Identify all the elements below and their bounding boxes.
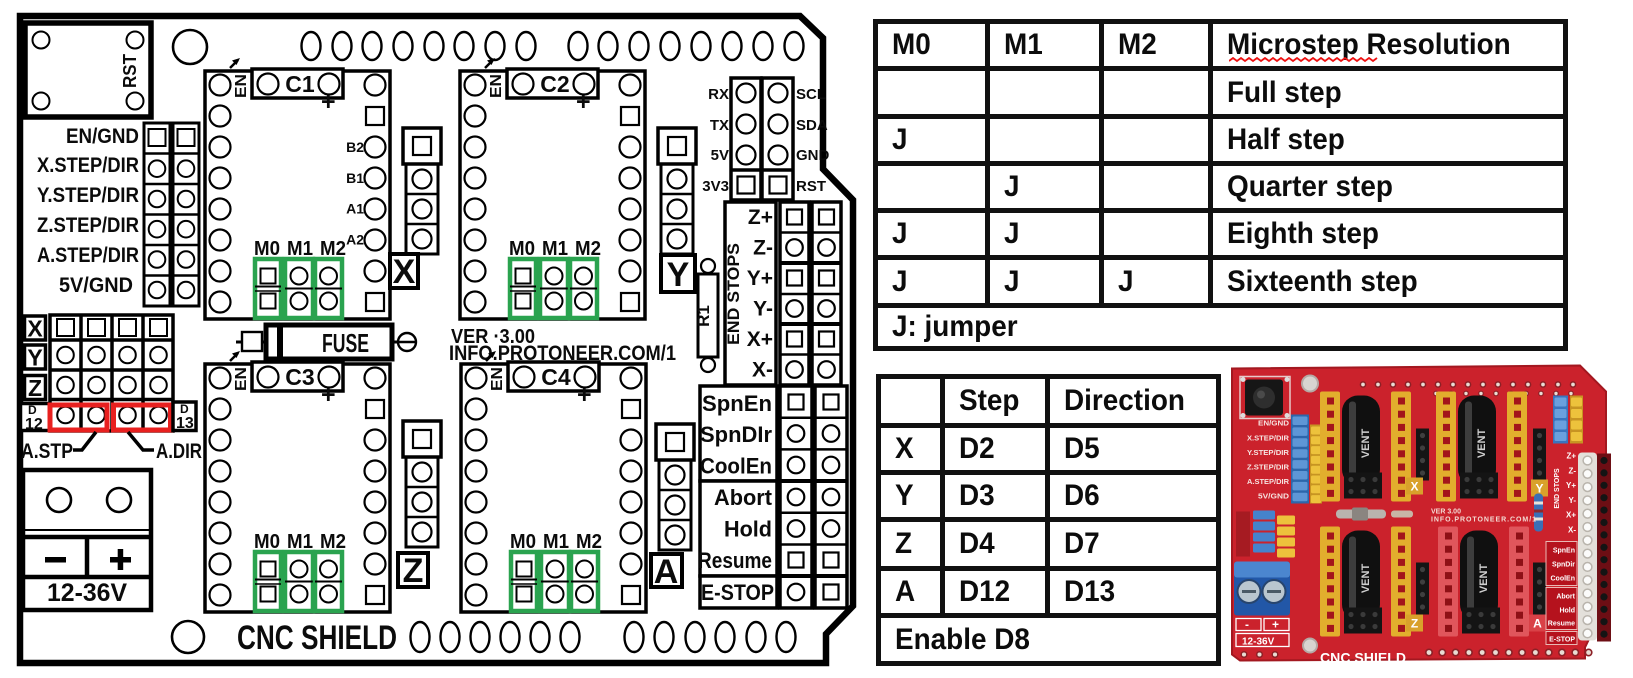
svg-text:Z+: Z+ (748, 206, 773, 229)
svg-text:D: D (28, 403, 37, 417)
svg-text:END STOPS: END STOPS (1554, 468, 1561, 509)
svg-text:5V/GND: 5V/GND (1258, 492, 1290, 501)
svg-text:Y: Y (667, 256, 690, 294)
svg-text:X.STEP/DIR: X.STEP/DIR (37, 154, 139, 177)
svg-text:INFO.PROTONEER.COM/1: INFO.PROTONEER.COM/1 (1431, 517, 1536, 524)
svg-text:SpnEn: SpnEn (702, 391, 772, 416)
svg-text:Abort: Abort (1556, 594, 1575, 601)
svg-text:X: X (27, 316, 43, 342)
svg-text:5V: 5V (711, 147, 729, 164)
svg-text:3V3: 3V3 (702, 178, 729, 195)
svg-text:Y+: Y+ (747, 267, 773, 290)
svg-text:X: X (1410, 480, 1418, 494)
svg-text:GND: GND (796, 147, 830, 164)
svg-text:FUSE: FUSE (322, 328, 369, 358)
svg-text:+: + (1272, 618, 1279, 632)
svg-text:SpnEn: SpnEn (1553, 548, 1575, 555)
svg-text:END STOPS: END STOPS (724, 243, 743, 345)
svg-text:VENT: VENT (1360, 564, 1372, 594)
svg-text:E-STOP: E-STOP (701, 580, 774, 605)
svg-text:A2: A2 (346, 232, 364, 248)
svg-text:D: D (180, 402, 189, 416)
svg-text:EN/GND: EN/GND (66, 125, 139, 148)
svg-text:Abort: Abort (714, 485, 773, 510)
svg-text:CNC SHIELD: CNC SHIELD (1320, 650, 1406, 666)
svg-text:Resume: Resume (1548, 621, 1575, 628)
svg-text:Resume: Resume (698, 548, 772, 573)
svg-text:12-36V: 12-36V (1242, 637, 1275, 648)
svg-text:A.STEP/DIR: A.STEP/DIR (1247, 477, 1290, 486)
svg-text:VER 3.00: VER 3.00 (1431, 509, 1461, 516)
svg-text:Z+: Z+ (1566, 452, 1576, 461)
svg-text:B1: B1 (346, 170, 364, 186)
svg-text:Y.STEP/DIR: Y.STEP/DIR (1247, 448, 1290, 457)
svg-text:R1: R1 (694, 305, 713, 327)
svg-text:12: 12 (25, 416, 43, 433)
svg-text:VENT: VENT (1476, 429, 1488, 459)
svg-text:C4: C4 (541, 364, 571, 390)
svg-text:SpnDir: SpnDir (1552, 562, 1575, 569)
svg-text:Z: Z (1411, 617, 1418, 631)
svg-text:A.STP: A.STP (21, 440, 73, 463)
svg-text:SpnDIr: SpnDIr (700, 422, 772, 447)
svg-text:VENT: VENT (1360, 429, 1372, 459)
svg-text:RX: RX (708, 86, 729, 103)
svg-text:-: - (1245, 618, 1249, 632)
svg-text:Y+: Y+ (1566, 481, 1576, 490)
svg-text:A.STEP/DIR: A.STEP/DIR (37, 244, 139, 267)
svg-text:TX: TX (710, 117, 729, 134)
svg-text:B2: B2 (346, 139, 364, 155)
svg-text:EN/GND: EN/GND (1258, 419, 1290, 428)
svg-text:CoolEn: CoolEn (1551, 576, 1576, 583)
svg-text:Z.STEP/DIR: Z.STEP/DIR (37, 214, 139, 237)
svg-text:Y.STEP/DIR: Y.STEP/DIR (37, 184, 139, 207)
svg-text:CoolEn: CoolEn (700, 454, 772, 479)
svg-text:C2: C2 (540, 71, 569, 97)
svg-text:Y: Y (27, 345, 42, 371)
svg-text:RST: RST (120, 54, 140, 88)
svg-text:Y-: Y- (753, 298, 773, 321)
svg-text:5V/GND: 5V/GND (59, 274, 133, 297)
svg-text:Hold: Hold (724, 517, 772, 542)
svg-text:VENT: VENT (1478, 564, 1490, 594)
svg-text:C3: C3 (285, 364, 314, 390)
svg-text:CNC SHIELD: CNC SHIELD (237, 619, 397, 657)
svg-text:13: 13 (176, 415, 194, 432)
svg-text:Hold: Hold (1559, 608, 1575, 615)
svg-text:E-STOP: E-STOP (1549, 637, 1575, 644)
svg-text:RST: RST (796, 178, 826, 195)
svg-text:A: A (654, 553, 679, 591)
svg-text:A1: A1 (346, 201, 364, 217)
svg-text:SCL: SCL (796, 86, 826, 103)
svg-text:Z-: Z- (753, 237, 773, 260)
svg-text:X+: X+ (747, 328, 773, 351)
svg-text:X-: X- (752, 359, 773, 382)
svg-text:A.DIR: A.DIR (156, 440, 202, 463)
svg-text:X.STEP/DIR: X.STEP/DIR (1247, 434, 1290, 443)
svg-text:Y-: Y- (1568, 496, 1576, 505)
svg-text:A: A (1533, 617, 1542, 631)
svg-text:Z-: Z- (1568, 466, 1576, 475)
svg-text:C1: C1 (285, 71, 315, 97)
svg-text:X-: X- (1568, 526, 1576, 535)
svg-text:X: X (393, 253, 416, 291)
svg-text:12-36V: 12-36V (47, 579, 127, 607)
svg-text:Z: Z (403, 552, 424, 590)
svg-text:SDA: SDA (796, 117, 828, 134)
svg-text:X+: X+ (1566, 511, 1576, 520)
svg-text:Z.STEP/DIR: Z.STEP/DIR (1247, 463, 1290, 472)
svg-text:Z: Z (28, 375, 42, 401)
svg-text:Y: Y (1535, 482, 1543, 496)
